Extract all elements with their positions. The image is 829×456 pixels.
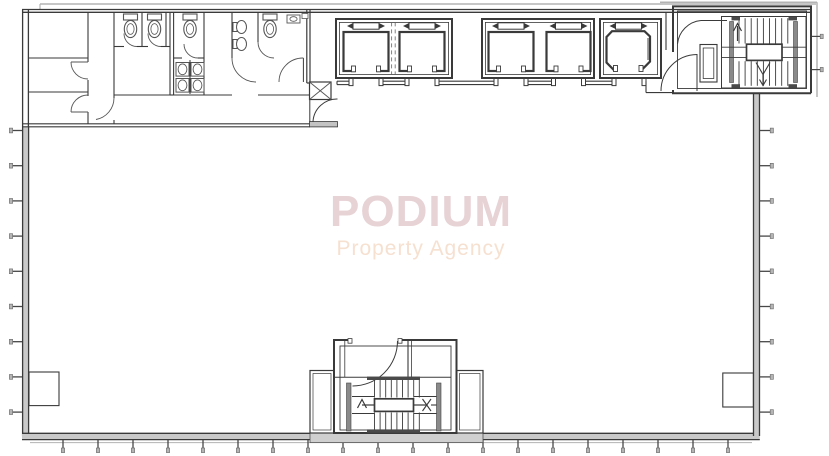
- north-east-stair: [660, 2, 823, 97]
- basin: [176, 79, 189, 93]
- south-central-stair: [310, 338, 483, 442]
- door-arc: [232, 58, 256, 82]
- door-arc: [258, 42, 274, 58]
- wc-toilet: [183, 14, 197, 38]
- elevator-car-5: [607, 31, 651, 73]
- elevator-direction-indicator: [492, 23, 530, 29]
- elevator-direction-indicator: [610, 23, 648, 29]
- urinal: [233, 38, 247, 51]
- door-arc: [71, 95, 88, 112]
- elevator-car-3: [489, 32, 534, 73]
- door-arc: [310, 99, 338, 127]
- elevator-bank-2: [482, 19, 594, 78]
- door-arc: [279, 58, 303, 82]
- stair-landing: [375, 399, 414, 412]
- door-arc: [96, 98, 114, 120]
- elevator-car-1: [344, 32, 389, 73]
- door-arc: [661, 54, 697, 91]
- service-riser: [310, 82, 332, 122]
- basin: [176, 63, 189, 77]
- elevator-car-4: [547, 32, 591, 73]
- washroom-block: [22, 10, 310, 127]
- riser-box-south-west: [29, 372, 59, 406]
- wc-toilet: [124, 14, 138, 38]
- door-arc: [678, 21, 728, 45]
- elevator-direction-indicator: [347, 23, 385, 29]
- elevator-car-2: [400, 32, 445, 73]
- riser-box-south-east: [723, 373, 754, 407]
- stair-landing: [747, 44, 783, 60]
- wc-toilet: [148, 14, 162, 38]
- stair-wing-right: [457, 371, 484, 434]
- floor-plan-page: PODIUM Property Agency: [0, 0, 829, 456]
- stair-up-arrow: [734, 24, 742, 42]
- elevator-direction-indicator: [403, 23, 441, 29]
- urinal: [233, 21, 247, 34]
- wc-toilet: [263, 14, 277, 38]
- elevator-bank-1: [336, 19, 452, 78]
- wall-basin: [287, 15, 300, 23]
- elevator-direction-indicator: [550, 23, 588, 29]
- service-riser: [700, 45, 717, 83]
- elevator-bank-3: [600, 19, 661, 78]
- basin-counter: [176, 60, 204, 94]
- door-arc: [71, 62, 88, 79]
- basin: [191, 79, 204, 93]
- floor-plan-drawing: [0, 0, 829, 456]
- stair-wing-left: [310, 371, 334, 434]
- door-arc: [184, 44, 198, 58]
- basin: [191, 63, 204, 77]
